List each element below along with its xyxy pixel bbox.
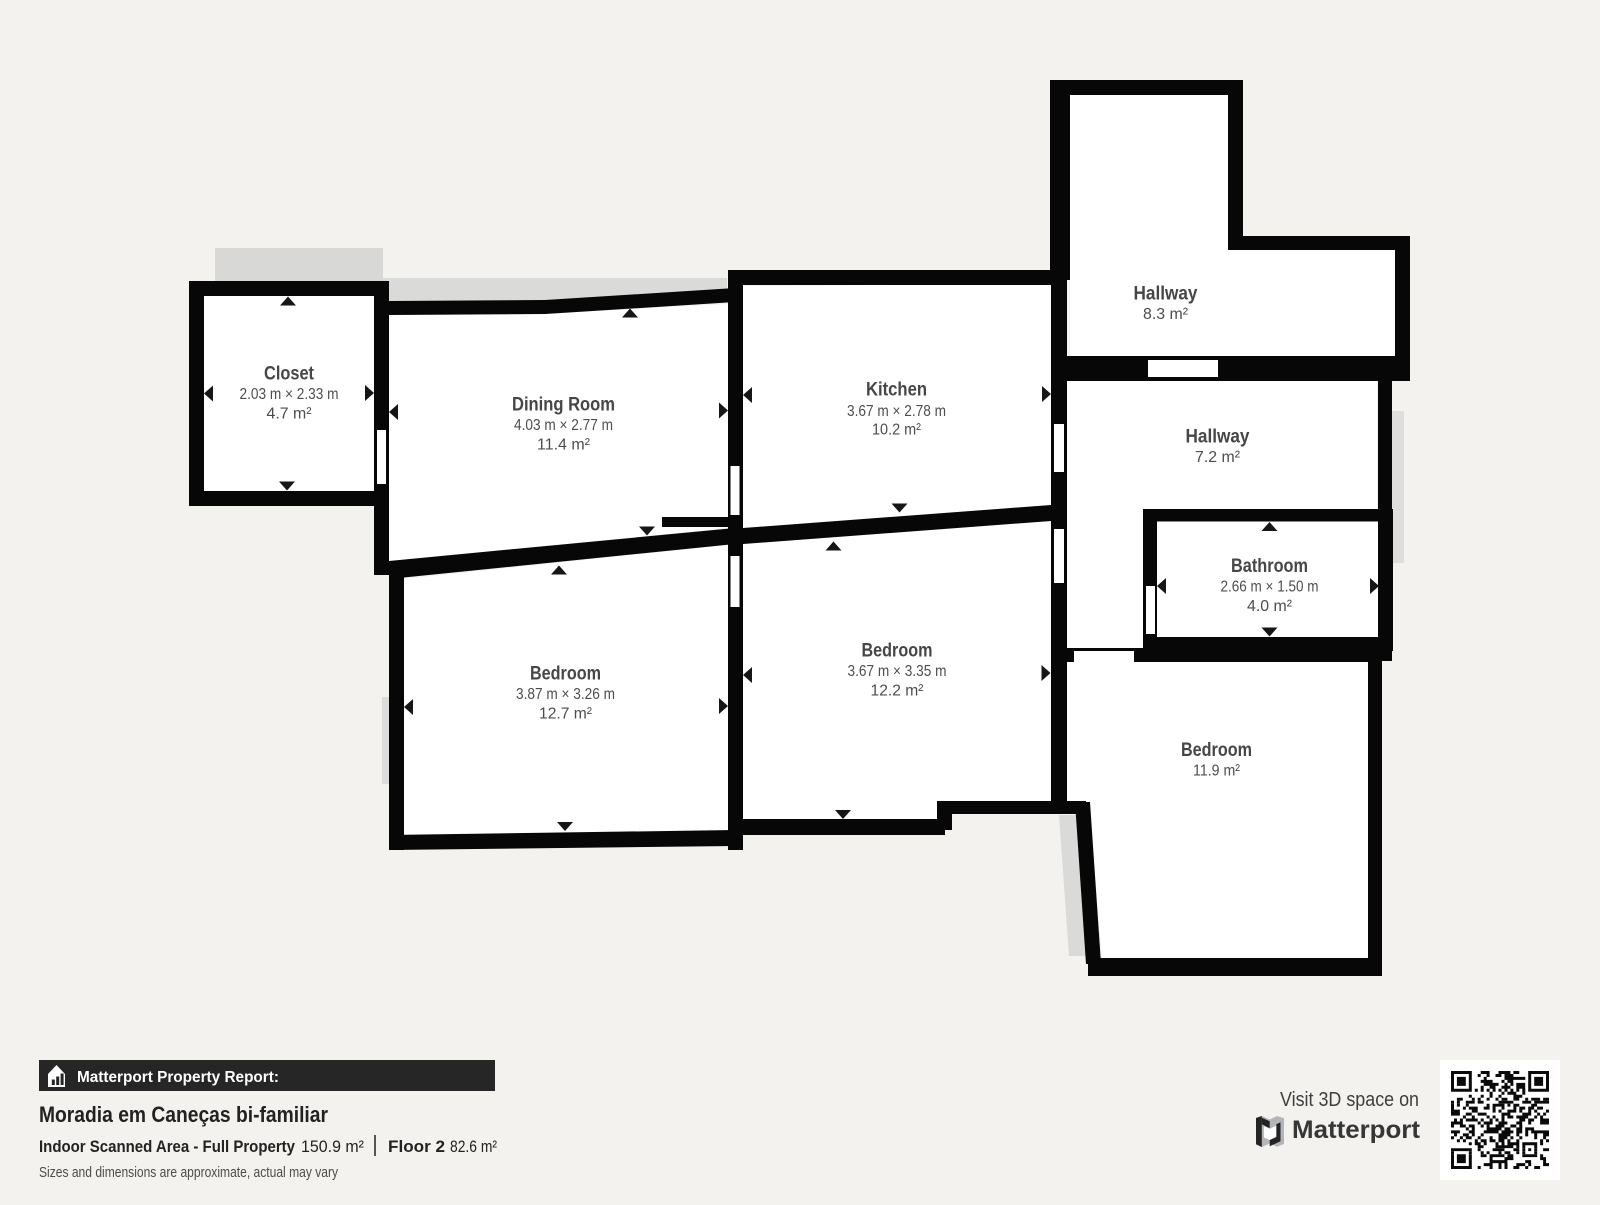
svg-text:3.67 m × 3.35 m: 3.67 m × 3.35 m [848, 663, 947, 680]
svg-text:7.2 m²: 7.2 m² [1195, 449, 1241, 466]
svg-text:Bedroom: Bedroom [1181, 740, 1252, 761]
svg-text:Bathroom: Bathroom [1231, 556, 1308, 577]
svg-text:4.0 m²: 4.0 m² [1247, 598, 1293, 615]
svg-text:Dining Room: Dining Room [512, 395, 615, 416]
svg-text:10.2 m²: 10.2 m² [872, 422, 922, 439]
svg-text:4.7 m²: 4.7 m² [267, 406, 313, 423]
svg-text:Hallway: Hallway [1186, 427, 1250, 448]
svg-text:Hallway: Hallway [1134, 284, 1198, 305]
svg-text:Indoor Scanned Area - Full Pro: Indoor Scanned Area - Full Property [39, 1137, 295, 1156]
svg-text:4.03 m × 2.77 m: 4.03 m × 2.77 m [514, 417, 613, 434]
svg-text:2.66 m × 1.50 m: 2.66 m × 1.50 m [1221, 579, 1319, 596]
svg-text:11.4 m²: 11.4 m² [537, 437, 591, 454]
svg-text:8.3 m²: 8.3 m² [1143, 306, 1189, 323]
svg-text:12.2 m²: 12.2 m² [871, 683, 925, 700]
svg-text:Moradia em Caneças bi-familiar: Moradia em Caneças bi-familiar [39, 1102, 328, 1127]
svg-text:Matterport: Matterport [1292, 1116, 1421, 1144]
svg-text:Visit 3D space on: Visit 3D space on [1280, 1089, 1419, 1111]
svg-text:2.03 m × 2.33 m: 2.03 m × 2.33 m [240, 386, 339, 403]
svg-text:150.9 m²: 150.9 m² [301, 1137, 364, 1156]
svg-text:12.7 m²: 12.7 m² [539, 706, 593, 723]
svg-text:Sizes and dimensions are appro: Sizes and dimensions are approximate, ac… [39, 1164, 338, 1181]
svg-text:3.87 m × 3.26 m: 3.87 m × 3.26 m [516, 686, 615, 703]
svg-text:82.6 m²: 82.6 m² [450, 1137, 497, 1156]
svg-text:Closet: Closet [264, 364, 315, 385]
svg-text:Bedroom: Bedroom [862, 641, 933, 662]
svg-text:11.9 m²: 11.9 m² [1193, 763, 1241, 780]
svg-text:Floor 2: Floor 2 [388, 1137, 445, 1156]
svg-text:Kitchen: Kitchen [866, 380, 927, 401]
svg-text:Bedroom: Bedroom [530, 664, 601, 685]
svg-text:3.67 m × 2.78 m: 3.67 m × 2.78 m [847, 403, 946, 420]
svg-text:Matterport Property Report:: Matterport Property Report: [77, 1069, 279, 1086]
